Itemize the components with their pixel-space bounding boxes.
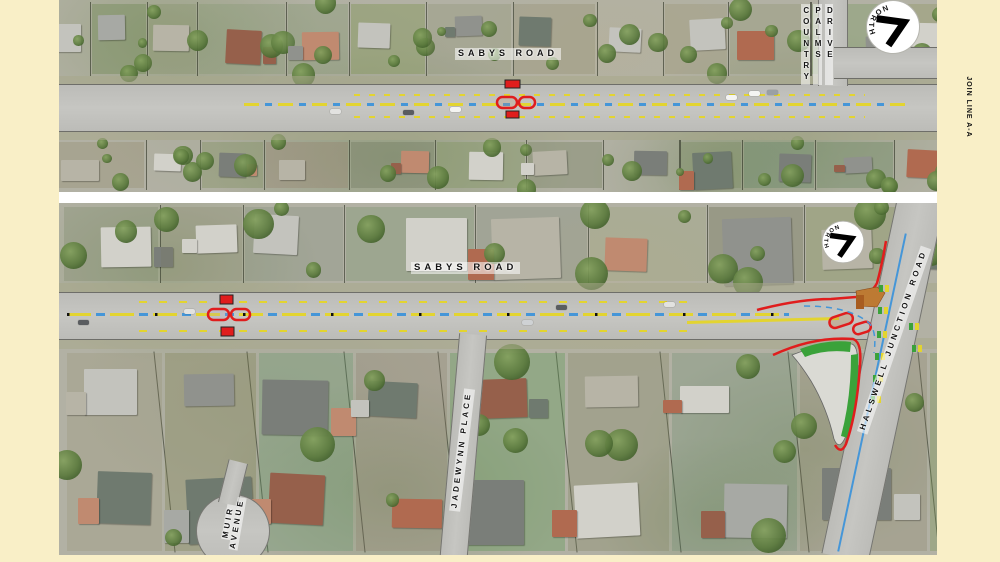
- vehicle: [726, 95, 737, 100]
- outbuilding-roof: [78, 498, 99, 524]
- north-arrow: NORTH: [821, 220, 865, 264]
- building-roof: [680, 386, 728, 413]
- traffic-plan-canvas: SABYS ROAD COUNTRY PALMS DRIVE NORTH JOI…: [0, 0, 1000, 562]
- outbuilding-roof: [66, 392, 86, 415]
- tree: [703, 153, 713, 163]
- tree: [174, 149, 188, 163]
- tree: [622, 161, 642, 181]
- tree: [60, 242, 87, 269]
- outbuilding-roof: [445, 27, 455, 37]
- north-arrow: NORTH: [865, 0, 921, 55]
- tree: [619, 24, 640, 45]
- outbuilding-roof: [521, 163, 534, 175]
- parcel-line: [815, 140, 816, 190]
- street-label-line: COUNTRY: [801, 4, 810, 85]
- tree: [736, 354, 760, 378]
- vehicle: [556, 305, 567, 310]
- parcel-line: [344, 205, 345, 283]
- tree: [102, 154, 111, 163]
- grass-verge: [59, 283, 937, 292]
- building-roof: [98, 14, 125, 40]
- tree: [73, 35, 83, 45]
- tree: [364, 370, 384, 390]
- tree: [437, 27, 446, 36]
- tree: [680, 46, 697, 63]
- vehicle: [330, 109, 341, 114]
- outbuilding-roof: [552, 510, 576, 536]
- building-roof: [604, 237, 647, 271]
- tree: [676, 168, 684, 176]
- tree: [380, 165, 397, 182]
- panel-divider: [59, 192, 937, 203]
- tree: [583, 14, 597, 28]
- vehicle: [78, 320, 89, 325]
- building-roof: [279, 160, 306, 180]
- tree: [678, 210, 691, 223]
- building-roof: [268, 472, 326, 525]
- tree: [306, 262, 321, 277]
- parcel-line: [146, 140, 147, 190]
- tree: [138, 38, 147, 47]
- vehicle: [403, 110, 414, 115]
- building-roof: [454, 16, 482, 37]
- tree: [598, 44, 617, 63]
- vehicle: [767, 90, 778, 95]
- tree: [147, 5, 161, 19]
- building-roof: [476, 378, 527, 419]
- tree: [751, 518, 786, 553]
- lawn: [428, 4, 511, 74]
- building-roof: [469, 152, 503, 180]
- building-roof: [532, 150, 567, 176]
- lane-dash-marking: [354, 94, 865, 96]
- tree: [357, 215, 385, 243]
- sabys-road-label: SABYS ROAD: [411, 262, 520, 274]
- parcel-line: [804, 205, 805, 283]
- country-palms-drive-label: COUNTRY PALMS DRIVE: [801, 4, 833, 85]
- building-roof: [573, 482, 640, 538]
- outbuilding-roof: [663, 400, 681, 414]
- building-roof: [585, 376, 639, 408]
- centreline-marking: [67, 313, 789, 316]
- building-roof: [392, 499, 443, 529]
- tree: [503, 428, 528, 453]
- sabys-road-label: SABYS ROAD: [455, 48, 561, 60]
- tree: [243, 209, 274, 240]
- tree: [427, 166, 449, 188]
- edge-line-marking: [687, 317, 839, 323]
- tree: [154, 207, 179, 232]
- centreline-marking: [244, 103, 907, 106]
- parcel-line: [597, 2, 598, 76]
- tree: [115, 220, 137, 242]
- tree: [927, 171, 937, 191]
- outbuilding-roof: [182, 239, 198, 253]
- vehicle: [664, 302, 675, 307]
- tree: [773, 440, 796, 463]
- tree: [758, 173, 771, 186]
- lawn: [930, 353, 937, 551]
- lane-dash-marking: [354, 116, 865, 118]
- parcel-line: [264, 140, 265, 190]
- tree: [196, 152, 214, 170]
- tree: [300, 427, 335, 462]
- building-roof: [61, 160, 99, 182]
- tree: [234, 154, 257, 177]
- street-label-line: DRIVE: [825, 4, 834, 85]
- tree: [765, 25, 778, 38]
- tree: [494, 344, 530, 380]
- sabys-road-surface: [59, 84, 937, 132]
- vehicle: [450, 107, 461, 112]
- aerial-plan-top: SABYS ROAD COUNTRY PALMS DRIVE NORTH: [59, 0, 937, 192]
- join-line-label: JOIN LINE A-A: [963, 73, 973, 140]
- building-roof: [226, 29, 263, 64]
- parcel-line: [349, 140, 350, 190]
- tree: [882, 178, 898, 192]
- outbuilding-roof: [834, 165, 845, 173]
- building-roof: [358, 22, 390, 49]
- outbuilding-roof: [529, 399, 548, 418]
- tree: [483, 138, 502, 157]
- lane-dash-marking: [139, 301, 699, 303]
- street-label-line: PALMS: [813, 4, 822, 85]
- tree: [781, 164, 804, 187]
- sabys-road-surface: [59, 292, 899, 340]
- building-roof: [196, 225, 238, 254]
- building-roof: [400, 151, 428, 174]
- tree: [602, 154, 614, 166]
- tree: [388, 55, 400, 67]
- outbuilding-roof: [701, 511, 725, 538]
- lane-dash-marking: [139, 330, 699, 332]
- tree: [517, 179, 536, 192]
- building-roof: [519, 17, 552, 47]
- tree: [905, 393, 924, 412]
- tree: [112, 173, 130, 191]
- building-roof: [96, 471, 152, 525]
- north-arrow-circle: [822, 221, 864, 263]
- tree: [585, 430, 613, 458]
- vehicle: [522, 320, 533, 325]
- vehicle: [749, 91, 760, 96]
- building-roof: [183, 374, 234, 407]
- tree: [187, 30, 208, 51]
- aerial-plan-bottom: SABYS ROAD JADEWYNN PLACE MUIR AVENUE HA…: [59, 203, 937, 555]
- building-roof: [84, 369, 137, 415]
- outbuilding-roof: [351, 400, 369, 417]
- outbuilding-roof: [894, 494, 920, 520]
- building-roof: [844, 156, 873, 173]
- vehicle: [184, 309, 195, 314]
- building-roof: [689, 18, 725, 50]
- tree: [874, 203, 889, 215]
- outbuilding-roof: [288, 46, 302, 60]
- building-roof: [153, 25, 190, 52]
